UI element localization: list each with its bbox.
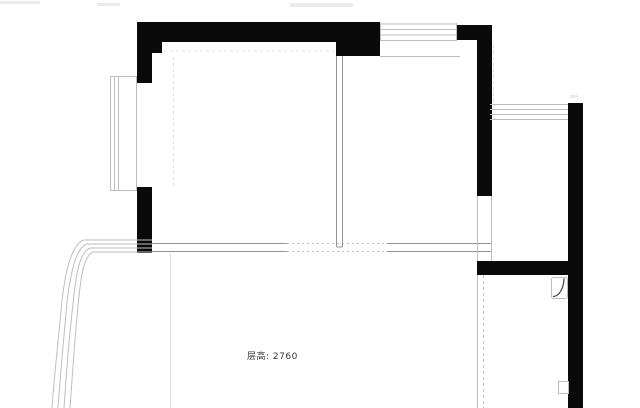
crop-artifact <box>0 1 40 4</box>
wall-middle-vertical <box>477 25 492 196</box>
flue-symbol-box <box>552 278 568 299</box>
wall-right <box>568 103 583 408</box>
floor-plan-drawing <box>0 0 640 408</box>
bay-window-curve <box>64 248 152 408</box>
ceiling-height-label: 层高: 2760 <box>247 352 298 363</box>
wall-top <box>137 22 336 42</box>
wall-kitchen-top <box>477 261 583 275</box>
pipe-box <box>559 382 569 394</box>
floor-plan: 层高: 2760 <box>0 0 640 408</box>
bay-window-curve <box>52 240 152 408</box>
wall-top-pier <box>336 22 380 56</box>
crop-artifact <box>290 3 353 7</box>
wall-left-lower <box>137 187 152 253</box>
bay-window-curve <box>70 252 152 408</box>
crop-artifact <box>570 95 578 98</box>
flue-arc <box>554 279 565 297</box>
crop-artifact <box>97 3 120 6</box>
